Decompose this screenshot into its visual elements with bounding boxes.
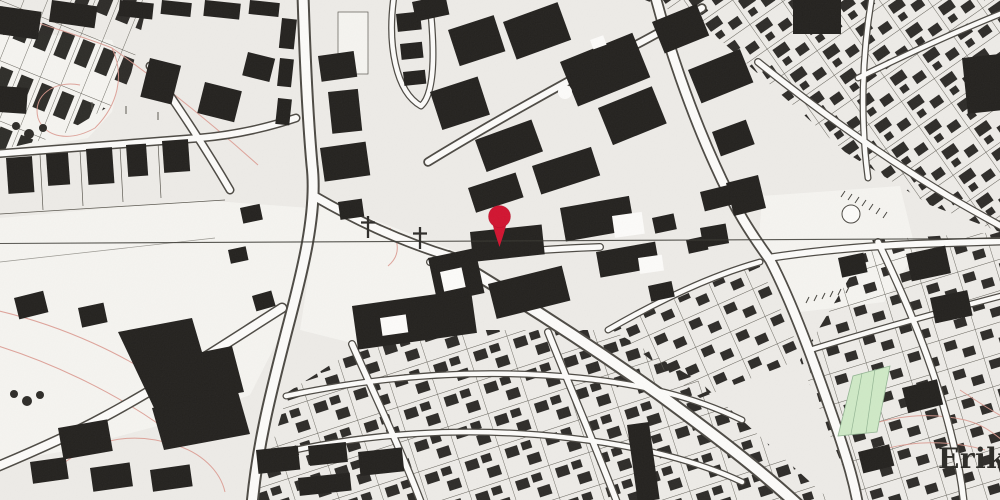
scan-noise-overlay xyxy=(0,0,1000,500)
map-canvas[interactable]: Erik xyxy=(0,0,1000,500)
map-image: Erik xyxy=(0,0,1000,500)
